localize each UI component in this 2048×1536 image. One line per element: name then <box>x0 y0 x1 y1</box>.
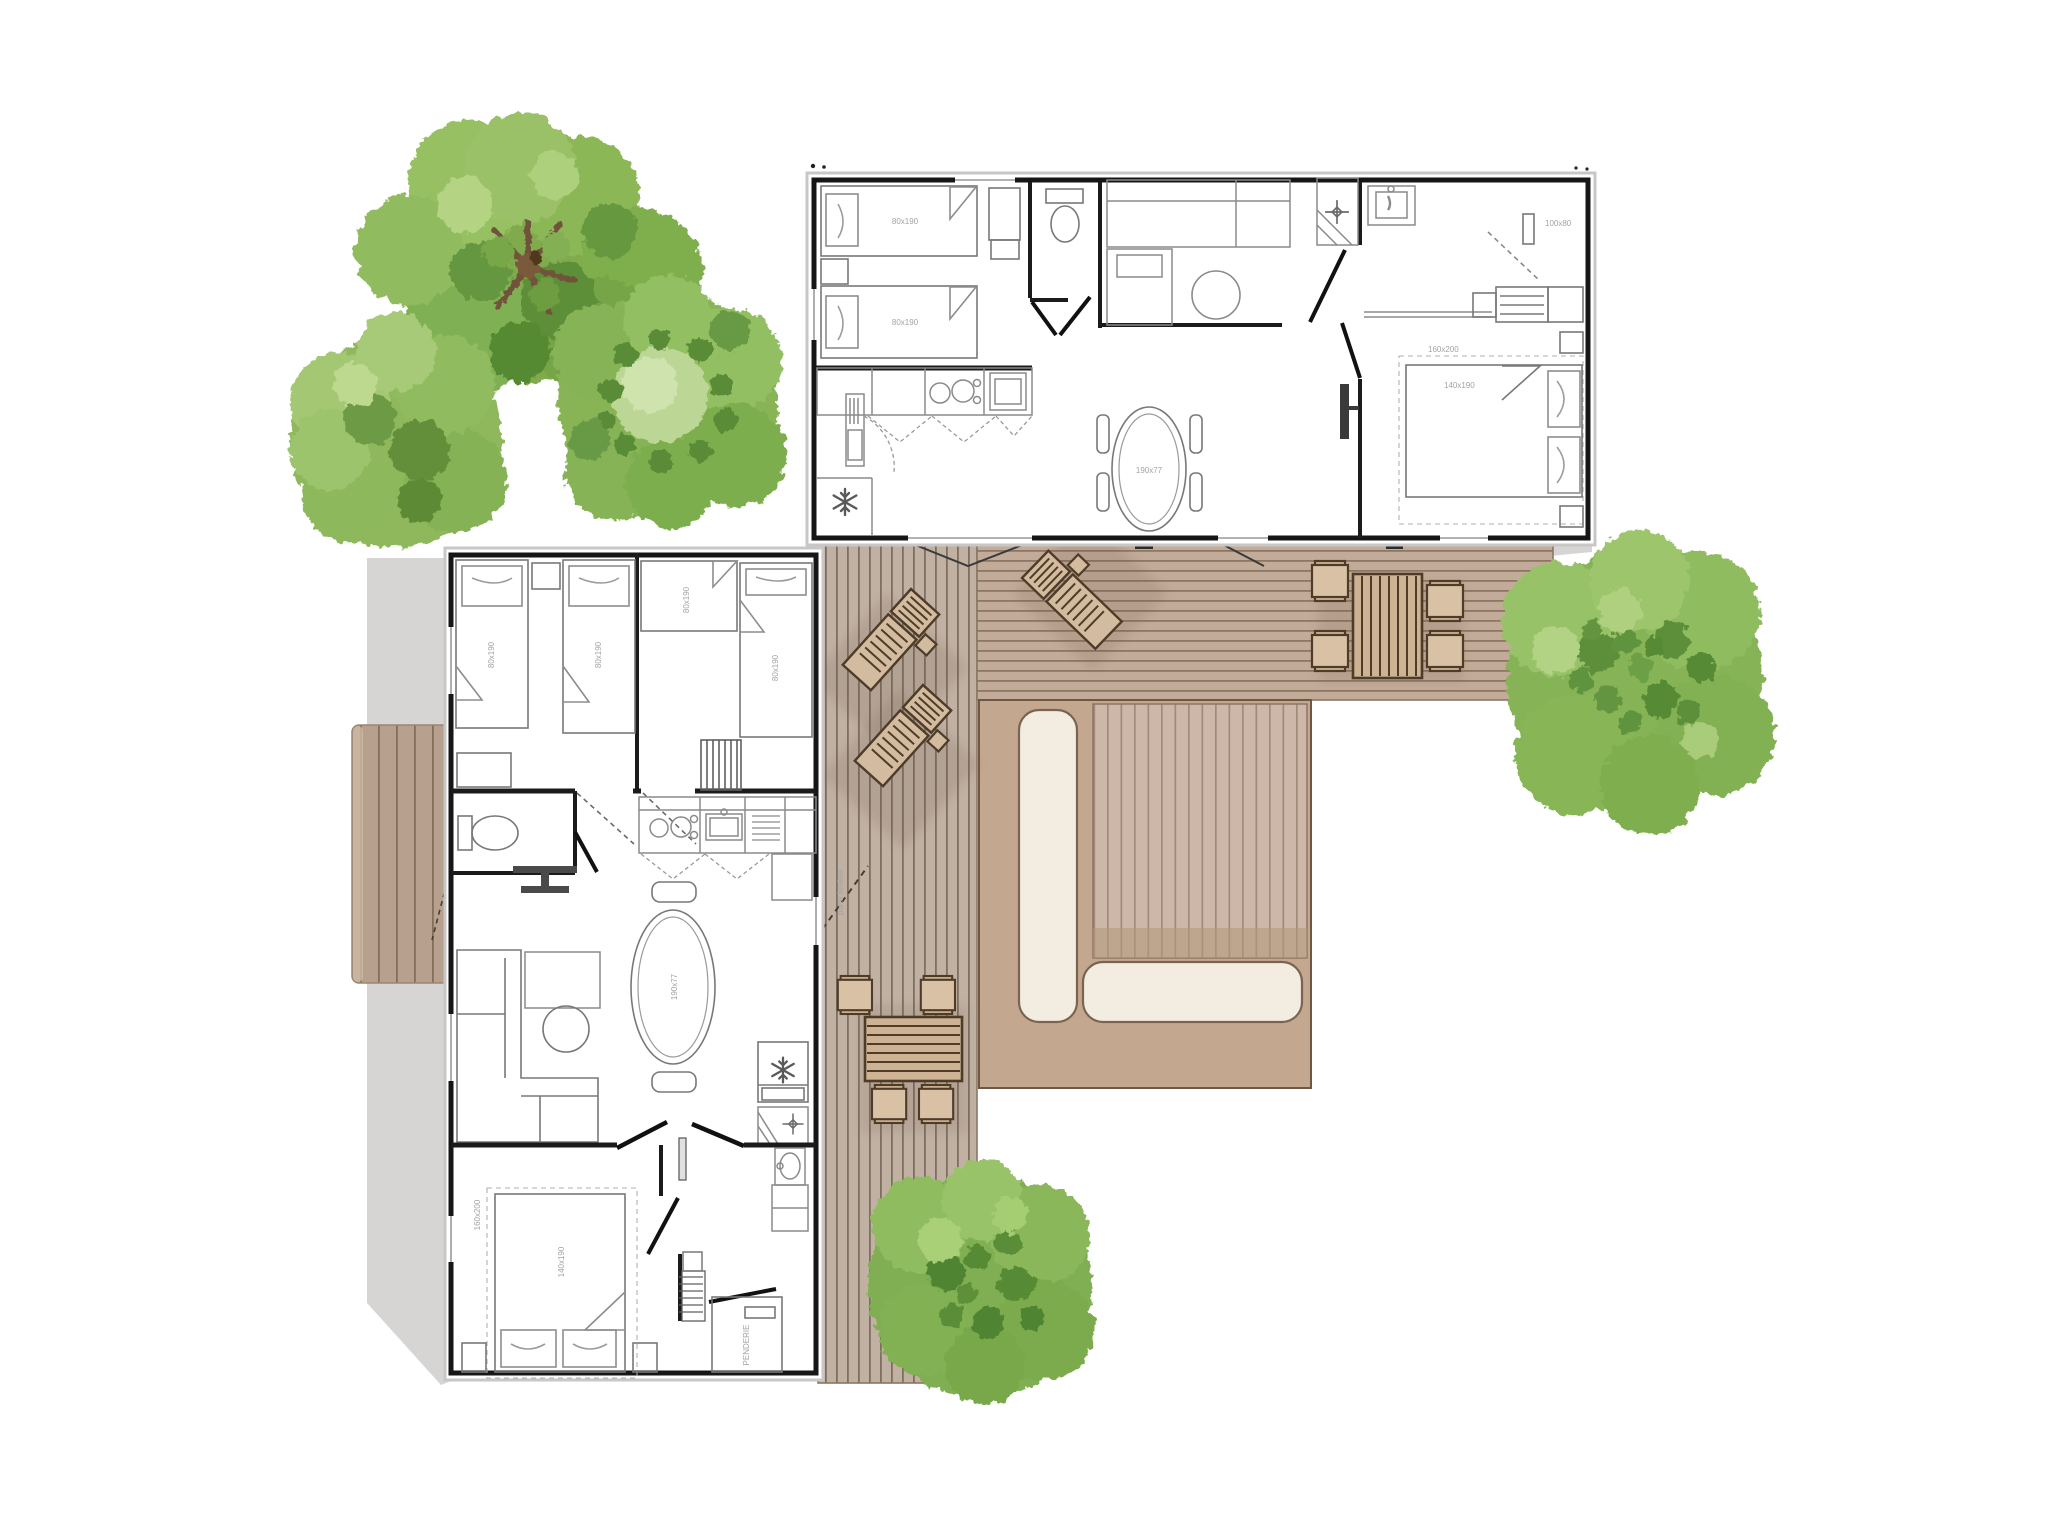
svg-text:160x200: 160x200 <box>1428 345 1459 354</box>
svg-text:160x200: 160x200 <box>473 1199 482 1230</box>
svg-text:PENDERIE: PENDERIE <box>742 1325 751 1366</box>
svg-text:100x80: 100x80 <box>1545 219 1572 228</box>
svg-text:80x190: 80x190 <box>487 641 496 668</box>
svg-text:80x190: 80x190 <box>892 318 919 327</box>
svg-text:80x190: 80x190 <box>771 654 780 681</box>
svg-text:140x190: 140x190 <box>557 1246 566 1277</box>
svg-text:80x190: 80x190 <box>892 217 919 226</box>
svg-text:porte fenêtre: porte fenêtre <box>836 869 845 915</box>
svg-text:190x77: 190x77 <box>1136 466 1163 475</box>
svg-text:80x190: 80x190 <box>682 586 691 613</box>
svg-text:190x77: 190x77 <box>670 973 679 1000</box>
svg-text:140x190: 140x190 <box>1444 381 1475 390</box>
svg-text:80x190: 80x190 <box>594 641 603 668</box>
